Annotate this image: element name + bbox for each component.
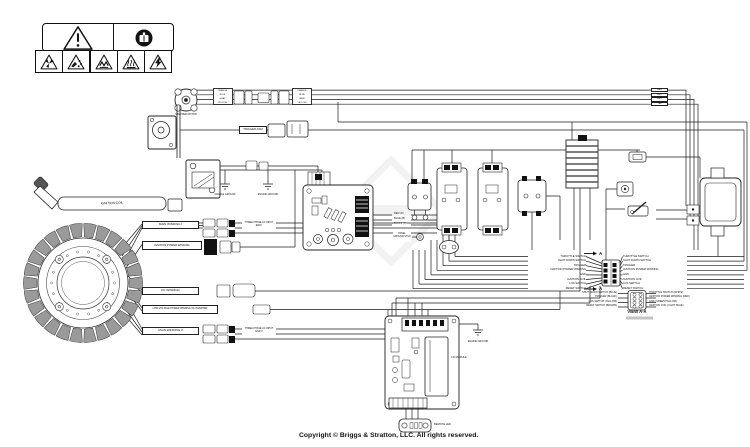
harness-right-ignition-power: IGNITION POWER WINDING	[623, 268, 685, 271]
circuit-board-2	[478, 163, 508, 235]
rotating-blades-icon	[35, 50, 63, 73]
hot-surface-icon	[117, 50, 145, 73]
wire-color: YELLOW	[293, 101, 311, 105]
harness-left-throttle: THROTTLE SWITCH	[530, 255, 586, 258]
harness-left-los: LOS SWITCH	[530, 282, 586, 285]
viewaa-title: VIEW A-A	[618, 310, 656, 316]
harness-right-reset: RESET SWITCH	[623, 287, 685, 290]
harness-right-ignition-coil: IGNITION COIL	[623, 278, 685, 281]
wires-harness-fan-left	[586, 257, 602, 289]
winding-label-dc: DC WINDING	[142, 287, 199, 295]
viewaa-left-shutdown: SHUT DOWN SWITCH (BLUE)	[560, 292, 617, 295]
relay-2	[518, 176, 546, 216]
viewaa-left-reset: RESET SWITCH (BROWN)	[560, 305, 617, 308]
harness-right-trigger: TRIGGER	[623, 264, 685, 267]
section-letter-top: A	[599, 251, 602, 256]
harness-connector	[602, 260, 620, 286]
harness-left-shutdown: SHUT DOWN SWITCH	[530, 259, 586, 262]
electric-shock-icon	[144, 50, 172, 73]
viewaa-right-ignition-coil: IGNITION COIL (LIGHT BLUE)	[649, 305, 709, 308]
general-alert-icon	[43, 24, 114, 51]
harness-right-los: LOS SWITCH	[623, 282, 685, 285]
winding-label-low-voltage: LOW-VOLTAGE POWER WINDING OF INVERTER	[142, 305, 218, 314]
wiring-schematic-page: MAIN WINDING I IGNITION POWER WINDING DC…	[0, 0, 750, 447]
viewaa-right-gnd: GND (GREEN/YELLOW)	[649, 301, 709, 304]
entanglement-icon	[90, 50, 118, 73]
ground-symbols-engine	[220, 184, 273, 189]
stepper-motor-label: STEPPER MOTOR	[168, 113, 204, 117]
lv-winding-connector	[253, 305, 270, 314]
dc-winding-connectors	[217, 284, 255, 297]
co-engine-ground-symbol	[473, 330, 483, 335]
harness-right-throttle: THROTTLE SWITCH	[623, 255, 685, 258]
view-aa-caption-bar	[626, 317, 653, 320]
wire-color: YELLOW	[214, 101, 232, 105]
circuit-board-1	[437, 163, 467, 235]
thrown-object-icon	[62, 50, 90, 73]
winding-label-main-2: MAIN WINDING II	[142, 327, 199, 335]
harness-left-reset: RESET SWITCH	[530, 287, 586, 290]
co-engine-ground-label: ENGINE GROUND	[466, 338, 490, 346]
remote-led-connector	[399, 419, 431, 432]
three-phase-connectors-1	[203, 219, 235, 237]
harness-right-shutdown: SHUT DOWN SWITCH	[623, 259, 685, 262]
harness-right-gnd: GND	[623, 273, 685, 276]
harness-left-trigger: TRIGGER	[530, 264, 586, 267]
remote-led-label: REMOTE LED	[434, 424, 451, 427]
ignition-winding-connectors	[204, 239, 240, 255]
stepper-wire-colors-1: ORANGE BLUE GRAY YELLOW	[213, 88, 233, 105]
key-switch	[628, 202, 648, 216]
stepper-motor	[175, 89, 197, 111]
harness-left-ignition-coil: IGNITION COIL	[530, 278, 586, 281]
viewaa-left-trigger: TRIGGER (BLACK)	[560, 296, 617, 299]
right-module	[687, 168, 741, 236]
trigger-asm-label: TRIGGER ASM	[239, 126, 267, 134]
harness-left-gnd: GND	[530, 273, 586, 276]
module-wire-blue: BLUE (B)	[394, 218, 405, 221]
winding-label-main-1: MAIN WINDING I	[142, 221, 199, 229]
cradle-ground-label: CRADLE GROUND	[213, 191, 237, 199]
read-manual-icon	[114, 24, 173, 51]
co-module-board	[385, 316, 459, 420]
winding-label-ignition-power: IGNITION POWER WINDING	[142, 241, 202, 250]
harness-left-ignition-power: IGNITION POWER WINDING	[530, 268, 586, 271]
panel-ground-stud-label: PANEL GROUND STUD	[393, 230, 411, 242]
stepper-connectors	[234, 91, 289, 104]
copyright-notice: Copyright © Briggs & Stratton, LLC. All …	[299, 432, 478, 440]
bundle-tag-4: YEL	[651, 102, 668, 106]
view-aa-connector	[628, 291, 646, 311]
viewaa-right-throttle: THROTTLE SWITCH (WHITE)	[649, 292, 709, 295]
three-phase-connectors-2	[203, 325, 235, 343]
rectifier-regulator	[566, 135, 598, 188]
module-wire-black: BLACK (F)	[394, 223, 407, 226]
three-phase-label-2: THREE PHASE AC INPUT END II	[242, 326, 276, 336]
fuse	[629, 152, 646, 162]
three-phase-label-1: THREE PHASE AC INPUT END I	[242, 220, 276, 230]
module-wire-red: RED (D)	[394, 213, 404, 216]
engine-ground-label: ENGINE GROUND	[256, 191, 280, 199]
viewaa-left-los: LOS SWITCH (YELLOW)	[560, 301, 617, 304]
warning-panel	[36, 22, 172, 73]
viewaa-right-ignition-power: IGNITION POWER WINDING (RED)	[649, 296, 709, 299]
co-module-label: CO MODULE	[451, 357, 467, 360]
wires-right-extensions	[687, 257, 747, 289]
diode	[617, 182, 633, 196]
stator-assembly	[23, 223, 142, 343]
stepper-wire-colors-2: ORANGE BLUE GRAY YELLOW	[292, 88, 312, 105]
